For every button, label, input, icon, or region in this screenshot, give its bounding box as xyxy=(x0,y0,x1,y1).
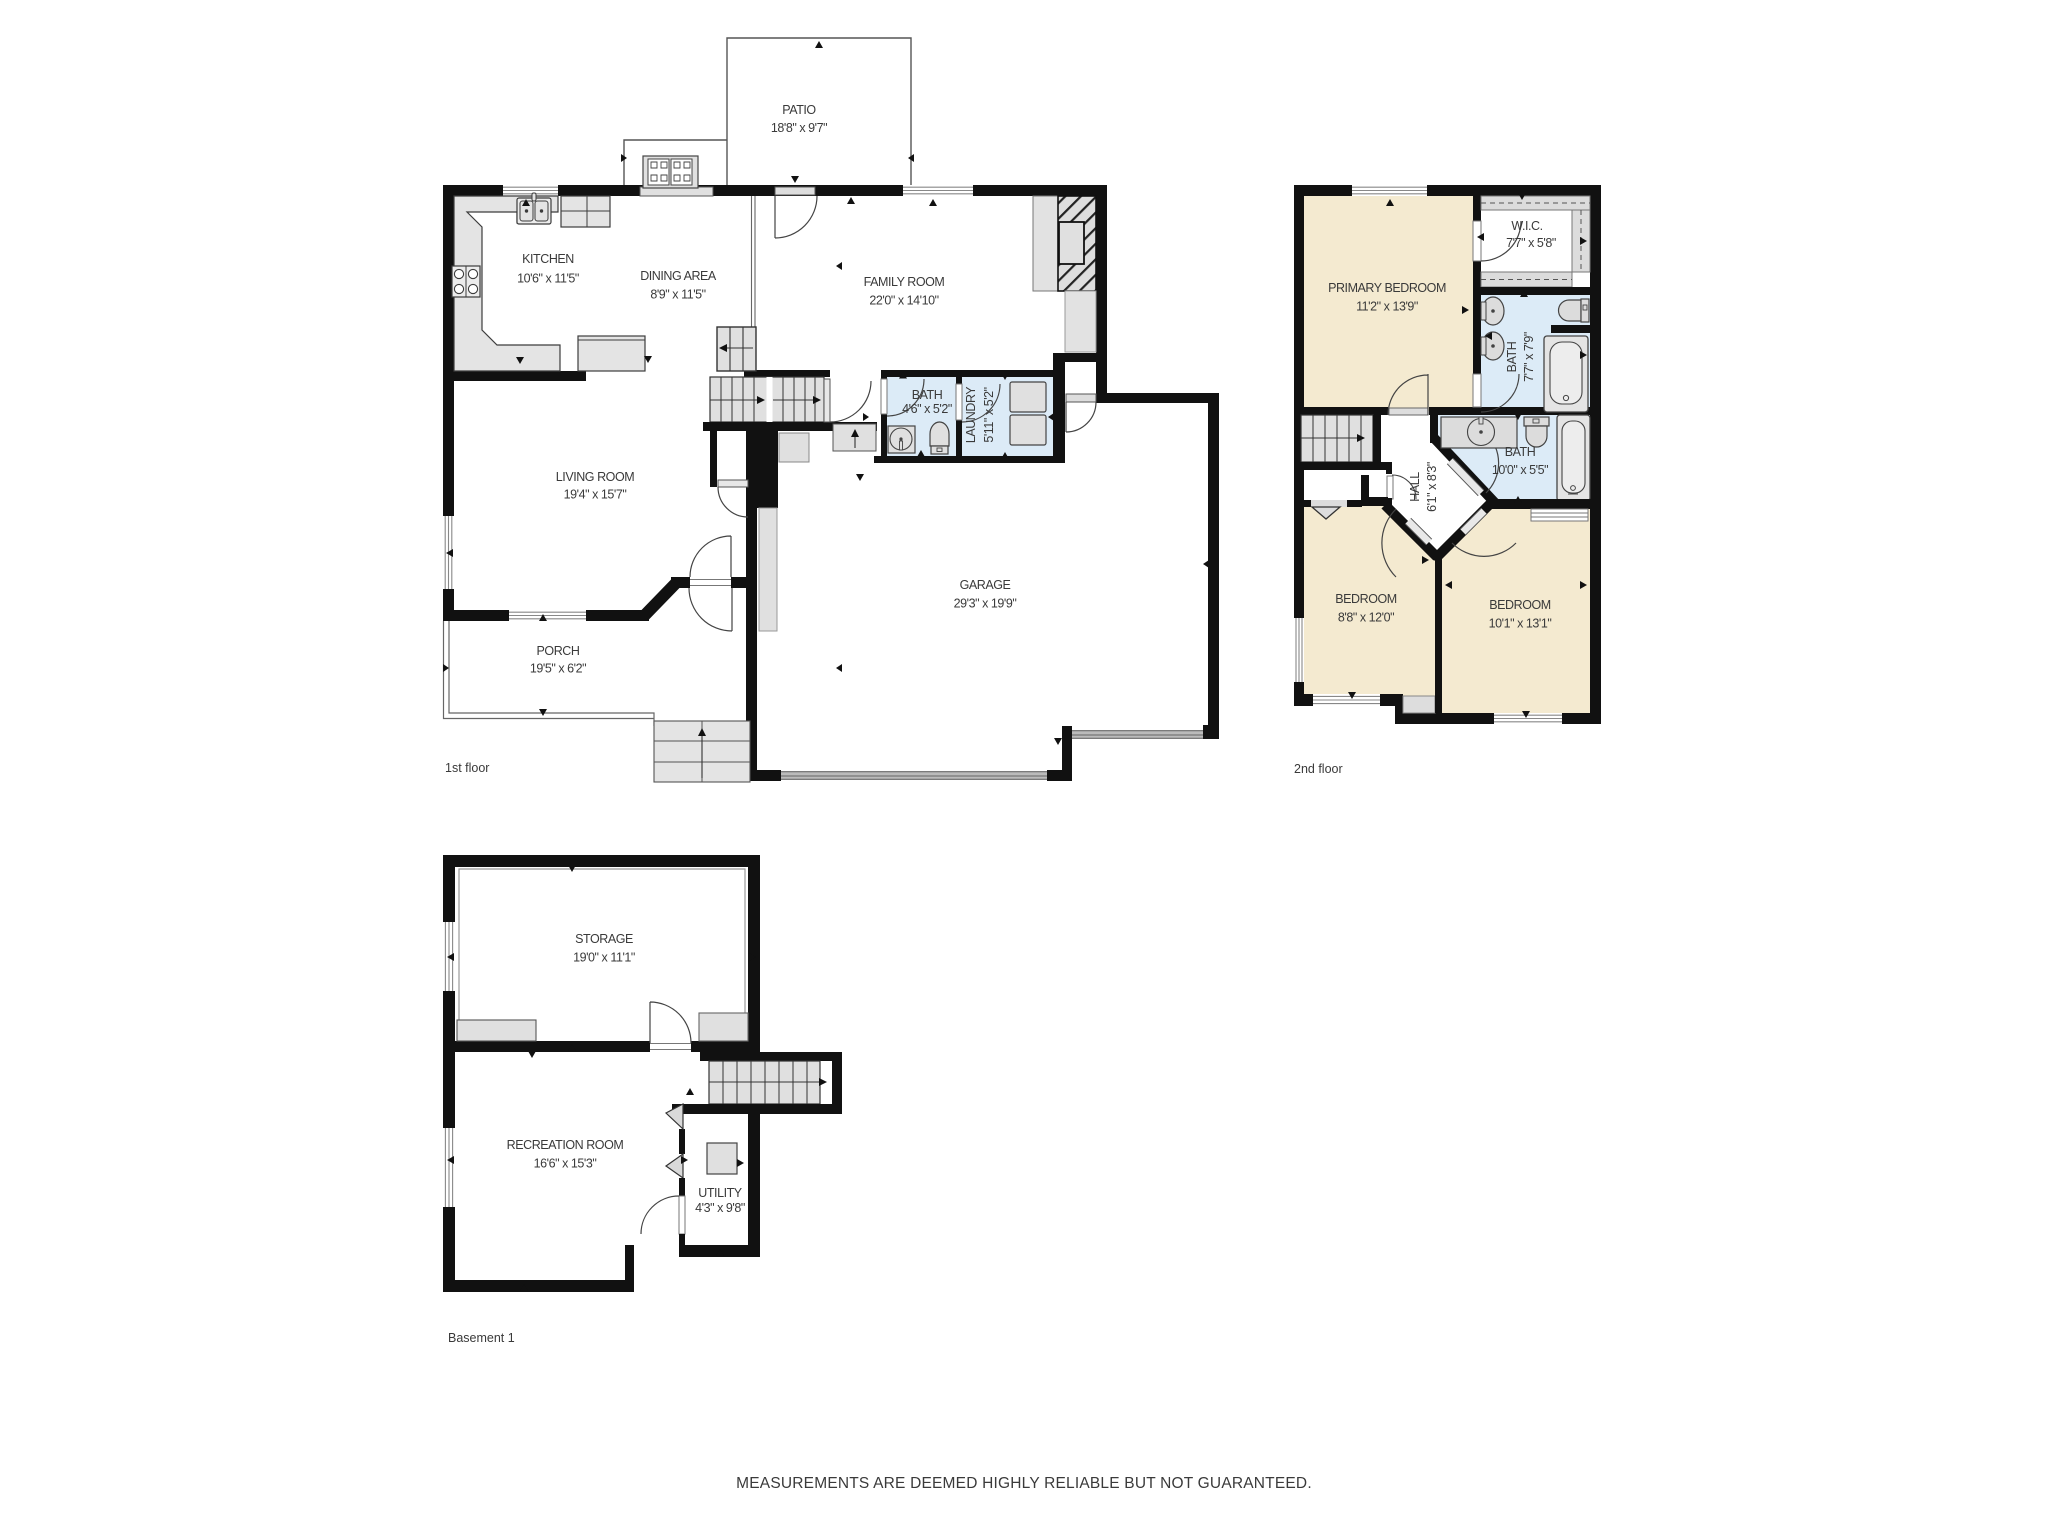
svg-text:RECREATION ROOM: RECREATION ROOM xyxy=(507,1138,624,1152)
svg-text:18'8" x 9'7": 18'8" x 9'7" xyxy=(771,121,827,135)
svg-text:1st floor: 1st floor xyxy=(445,761,489,775)
svg-text:19'5" x 6'2": 19'5" x 6'2" xyxy=(530,662,586,676)
svg-text:2nd floor: 2nd floor xyxy=(1294,762,1343,776)
svg-text:7'7" x 7'9": 7'7" x 7'9" xyxy=(1522,332,1536,382)
svg-text:BATH: BATH xyxy=(912,388,943,402)
svg-text:29'3" x 19'9": 29'3" x 19'9" xyxy=(954,597,1017,611)
svg-text:7'7" x 5'8": 7'7" x 5'8" xyxy=(1506,236,1556,250)
svg-text:BEDROOM: BEDROOM xyxy=(1489,598,1550,612)
svg-text:FAMILY ROOM: FAMILY ROOM xyxy=(864,275,945,289)
svg-text:PORCH: PORCH xyxy=(537,644,580,658)
svg-text:W.I.C.: W.I.C. xyxy=(1511,219,1542,233)
svg-text:LAUNDRY: LAUNDRY xyxy=(964,386,978,443)
svg-text:MEASUREMENTS ARE DEEMED HIGHLY: MEASUREMENTS ARE DEEMED HIGHLY RELIABLE … xyxy=(736,1475,1312,1492)
svg-text:DINING AREA: DINING AREA xyxy=(640,269,717,283)
svg-text:HALL: HALL xyxy=(1408,472,1422,502)
svg-text:11'2" x 13'9": 11'2" x 13'9" xyxy=(1356,300,1418,314)
svg-text:19'0" x 11'1": 19'0" x 11'1" xyxy=(573,951,635,965)
svg-text:PATIO: PATIO xyxy=(782,103,816,117)
svg-text:KITCHEN: KITCHEN xyxy=(522,252,574,266)
svg-text:22'0" x 14'10": 22'0" x 14'10" xyxy=(869,294,938,308)
svg-text:PRIMARY BEDROOM: PRIMARY BEDROOM xyxy=(1328,281,1446,295)
svg-text:8'8" x 12'0": 8'8" x 12'0" xyxy=(1338,611,1394,625)
svg-text:10'1" x 13'1": 10'1" x 13'1" xyxy=(1489,617,1552,631)
svg-text:16'6" x 15'3": 16'6" x 15'3" xyxy=(534,1157,597,1171)
svg-text:GARAGE: GARAGE xyxy=(960,578,1011,592)
svg-text:LIVING ROOM: LIVING ROOM xyxy=(556,470,634,484)
svg-text:10'6" x 11'5": 10'6" x 11'5" xyxy=(517,272,579,286)
svg-text:19'4" x 15'7": 19'4" x 15'7" xyxy=(564,488,627,502)
svg-text:5'11" x 5'2": 5'11" x 5'2" xyxy=(982,387,996,442)
svg-text:BEDROOM: BEDROOM xyxy=(1335,592,1396,606)
svg-text:4'3" x 9'8": 4'3" x 9'8" xyxy=(695,1201,745,1215)
svg-text:8'9" x 11'5": 8'9" x 11'5" xyxy=(650,288,705,302)
svg-text:10'0" x 5'5": 10'0" x 5'5" xyxy=(1492,463,1548,477)
svg-text:UTILITY: UTILITY xyxy=(698,1186,742,1200)
svg-text:6'1" x 8'3": 6'1" x 8'3" xyxy=(1425,462,1439,512)
svg-text:STORAGE: STORAGE xyxy=(575,932,633,946)
svg-text:4'6" x 5'2": 4'6" x 5'2" xyxy=(902,402,952,416)
svg-text:BATH: BATH xyxy=(1505,341,1519,372)
svg-text:Basement 1: Basement 1 xyxy=(448,1331,515,1345)
svg-text:BATH: BATH xyxy=(1505,445,1536,459)
